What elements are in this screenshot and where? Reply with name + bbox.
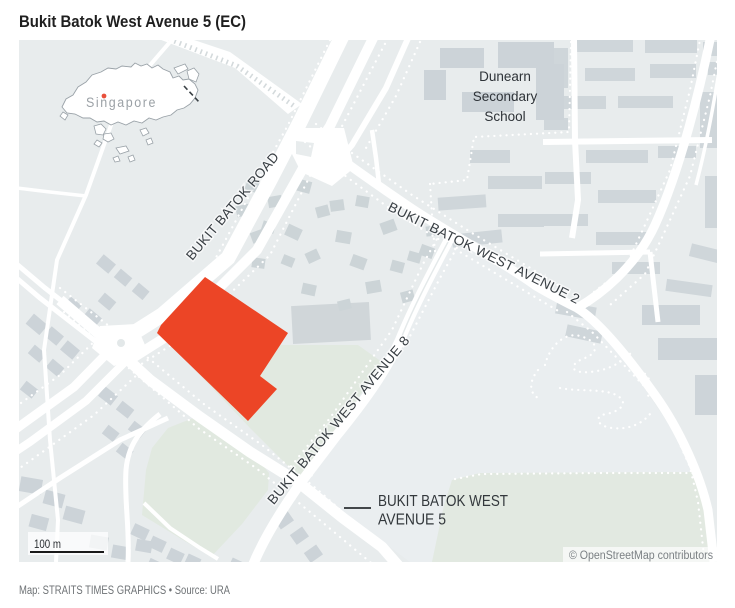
svg-text:Dunearn: Dunearn (479, 69, 531, 84)
svg-text:100 m: 100 m (34, 537, 61, 551)
svg-text:© OpenStreetMap contributors: © OpenStreetMap contributors (569, 550, 713, 562)
svg-text:School: School (484, 109, 525, 124)
svg-text:AVENUE 5: AVENUE 5 (378, 512, 446, 529)
svg-text:Secondary: Secondary (473, 89, 538, 104)
svg-text:BUKIT BATOK WEST: BUKIT BATOK WEST (378, 493, 508, 510)
svg-text:Map: STRAITS TIMES GRAPHICS •: Map: STRAITS TIMES GRAPHICS • Source: UR… (19, 585, 230, 597)
svg-text:Singapore: Singapore (86, 95, 157, 110)
svg-text:Bukit Batok West Avenue 5 (EC): Bukit Batok West Avenue 5 (EC) (19, 13, 246, 31)
